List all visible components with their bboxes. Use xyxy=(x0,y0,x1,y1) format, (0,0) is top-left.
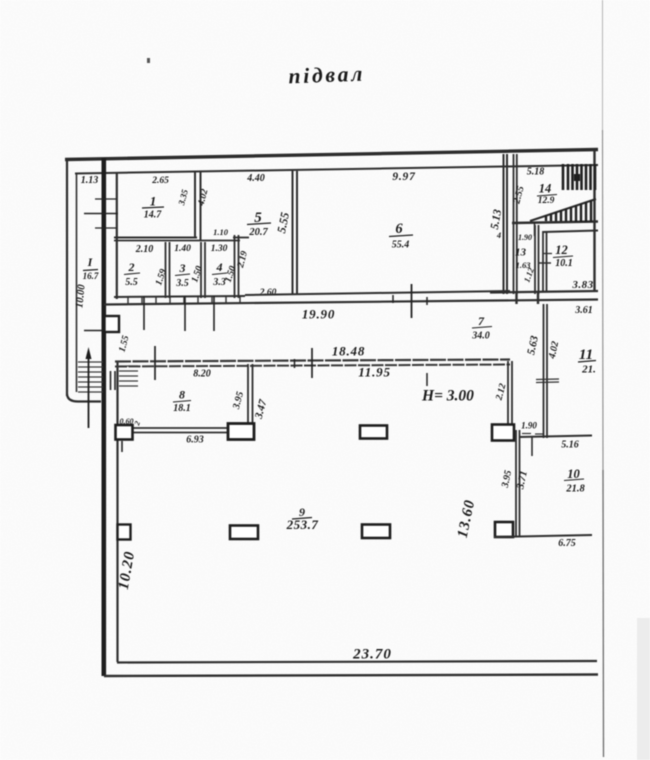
svg-text:18.1: 18.1 xyxy=(173,403,191,414)
svg-text:4.40: 4.40 xyxy=(246,173,265,184)
svg-text:10.1: 10.1 xyxy=(555,258,573,269)
svg-text:1.13: 1.13 xyxy=(81,175,99,186)
svg-text:0.60: 0.60 xyxy=(120,417,134,426)
svg-text:11.95: 11.95 xyxy=(358,365,391,380)
svg-text:13: 13 xyxy=(515,247,527,259)
svg-text:підвал: підвал xyxy=(288,62,365,89)
svg-text:4: 4 xyxy=(216,260,223,274)
svg-text:1.90: 1.90 xyxy=(521,421,537,431)
svg-text:9.97: 9.97 xyxy=(392,171,416,183)
svg-text:5.5: 5.5 xyxy=(125,277,138,288)
svg-text:14: 14 xyxy=(539,182,552,196)
svg-text:H= 3.00: H= 3.00 xyxy=(421,388,474,405)
svg-text:1.30: 1.30 xyxy=(211,244,228,254)
svg-text:8: 8 xyxy=(179,388,185,402)
svg-text:6.75: 6.75 xyxy=(558,538,576,549)
svg-text:8.20: 8.20 xyxy=(193,369,211,380)
svg-text:6.93: 6.93 xyxy=(186,435,204,446)
svg-text:7: 7 xyxy=(478,314,485,328)
svg-text:19.90: 19.90 xyxy=(302,307,335,322)
svg-text:2.65: 2.65 xyxy=(151,176,169,186)
svg-text:1.90: 1.90 xyxy=(518,233,532,242)
svg-text:2: 2 xyxy=(128,260,135,274)
svg-text:3.61: 3.61 xyxy=(574,305,593,316)
svg-text:21.: 21. xyxy=(581,364,596,376)
svg-text:20.7: 20.7 xyxy=(248,227,268,238)
svg-text:1.40: 1.40 xyxy=(174,244,191,254)
svg-text:253.7: 253.7 xyxy=(286,517,319,532)
svg-text:18.48: 18.48 xyxy=(332,344,365,359)
svg-text:16.7: 16.7 xyxy=(83,271,99,281)
svg-text:3.83: 3.83 xyxy=(571,279,593,291)
svg-text:2.10: 2.10 xyxy=(135,244,154,255)
svg-text:3: 3 xyxy=(179,261,186,275)
svg-text:1.10: 1.10 xyxy=(213,227,229,237)
svg-text:3.5: 3.5 xyxy=(175,278,189,289)
svg-text:5.18: 5.18 xyxy=(527,167,545,178)
svg-text:34.0: 34.0 xyxy=(471,331,490,342)
svg-text:6: 6 xyxy=(395,221,403,237)
svg-text:55.4: 55.4 xyxy=(392,240,410,251)
svg-text:23.70: 23.70 xyxy=(352,647,392,663)
svg-text:21.8: 21.8 xyxy=(565,484,585,495)
svg-text:1: 1 xyxy=(150,194,157,209)
svg-text:4: 4 xyxy=(496,230,501,240)
svg-text:12.9: 12.9 xyxy=(538,196,555,206)
svg-text:14.7: 14.7 xyxy=(144,210,163,221)
svg-text:12: 12 xyxy=(555,243,568,257)
svg-text:2.60: 2.60 xyxy=(259,288,277,298)
svg-text:5.16: 5.16 xyxy=(561,440,579,451)
